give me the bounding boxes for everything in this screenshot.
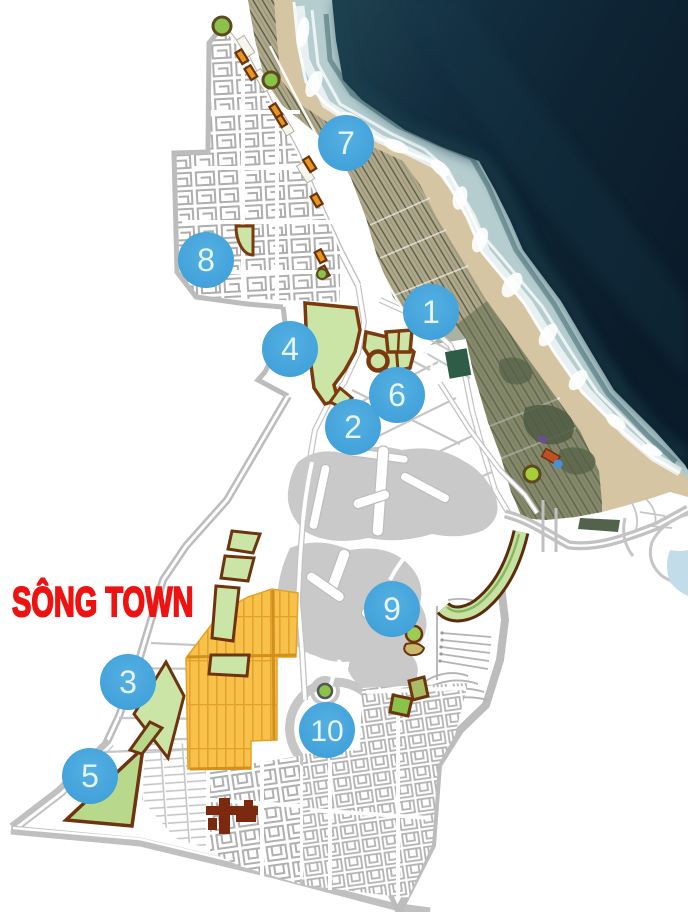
svg-text:1: 1 xyxy=(422,294,440,330)
svg-text:10: 10 xyxy=(310,715,343,748)
svg-text:5: 5 xyxy=(81,758,99,794)
svg-text:2: 2 xyxy=(344,409,362,445)
svg-text:3: 3 xyxy=(119,664,137,700)
svg-text:9: 9 xyxy=(383,591,401,627)
svg-text:SÔNG TOWN: SÔNG TOWN xyxy=(12,576,193,625)
svg-text:8: 8 xyxy=(197,242,215,278)
svg-text:4: 4 xyxy=(281,331,299,367)
svg-text:7: 7 xyxy=(337,125,355,161)
svg-text:6: 6 xyxy=(388,377,406,413)
